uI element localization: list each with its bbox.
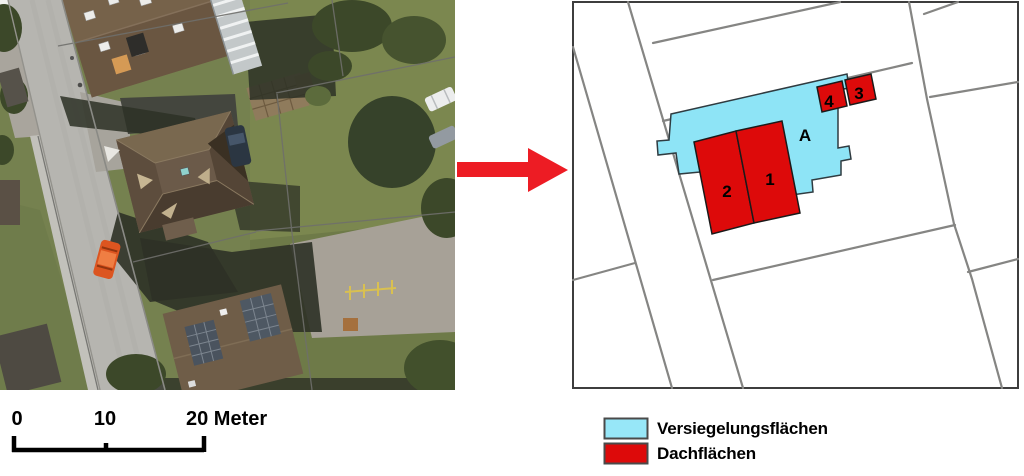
pedestrian-dot-1	[78, 83, 83, 88]
legend-item-versiegelung: Versiegelungsflächen	[603, 417, 828, 440]
aerial-photo-panel	[0, 0, 455, 390]
legend-swatch-versiegelung	[603, 417, 649, 440]
transform-arrow-icon	[450, 140, 575, 200]
legend-item-dach: Dachflächen	[603, 442, 828, 465]
pedestrian-dot-2	[70, 56, 74, 60]
roof-label-2: 2	[722, 182, 731, 201]
legend: Versiegelungsflächen Dachflächen	[603, 417, 828, 467]
legend-swatch-rect-versiegelung	[605, 419, 648, 439]
sealed-area-label: A	[799, 126, 811, 145]
figure-canvas: 2 1 A 4 3 0 10 20 Meter Versiegelungsflä…	[0, 0, 1024, 476]
scale-bar: 0 10 20 Meter	[4, 404, 304, 466]
arrow-shape	[457, 148, 568, 192]
scale-bar-line	[12, 436, 204, 452]
wood-structure	[343, 318, 358, 331]
legend-swatch-dach	[603, 442, 649, 465]
legend-label-dach: Dachflächen	[657, 444, 756, 464]
legend-swatch-rect-dach	[605, 444, 648, 464]
scale-label-20: 20 Meter	[186, 408, 267, 430]
legend-label-versiegelung: Versiegelungsflächen	[657, 419, 828, 439]
roof-label-3: 3	[854, 84, 863, 103]
scale-label-10: 10	[94, 408, 116, 430]
roof-label-4: 4	[824, 92, 834, 111]
scale-label-0: 0	[11, 408, 22, 430]
left-roof-2	[0, 180, 20, 225]
skylight-cyan	[180, 167, 189, 176]
parcel-map-panel: 2 1 A 4 3	[572, 1, 1019, 389]
roof-label-1: 1	[765, 170, 774, 189]
